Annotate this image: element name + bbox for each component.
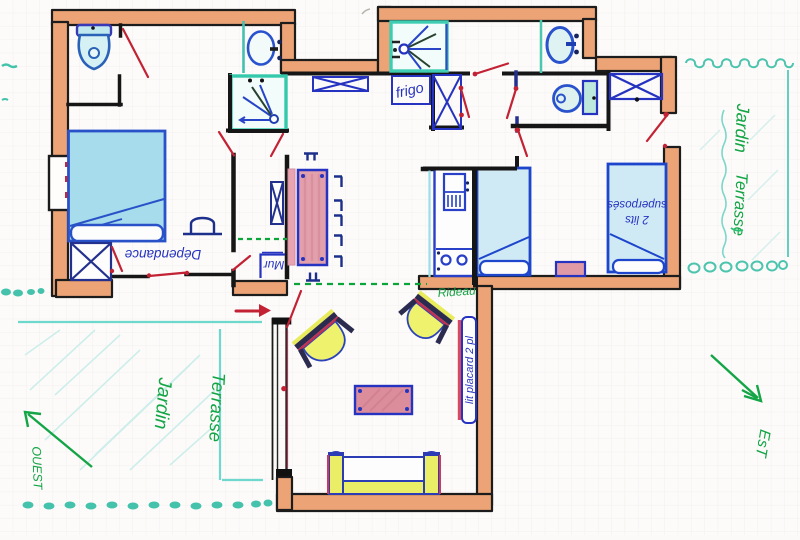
svg-text:Mur: Mur: [263, 258, 285, 272]
svg-text:Terrasse: Terrasse: [205, 372, 229, 442]
svg-text:Dépendance: Dépendance: [125, 247, 202, 262]
svg-text:OUEST: OUEST: [29, 446, 45, 491]
svg-text:superposés: superposés: [607, 198, 667, 210]
svg-text:lit placard 2 pl: lit placard 2 pl: [464, 336, 476, 404]
svg-text:Terrasse: Terrasse: [729, 172, 750, 236]
svg-text:2 lits: 2 lits: [625, 213, 650, 225]
svg-text:Rideau: Rideau: [437, 283, 476, 300]
svg-text:Jardin: Jardin: [731, 102, 754, 153]
